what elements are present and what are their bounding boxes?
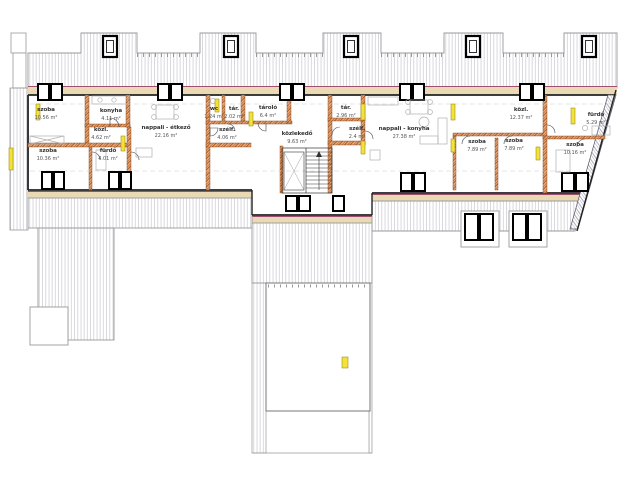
skylight-window-icon xyxy=(344,36,358,57)
floor-plan-canvas: szoba10.56 m²konyha4.11 m²közl.4.62 m²sz… xyxy=(0,0,640,480)
stairs xyxy=(282,148,332,193)
window-icon xyxy=(286,196,310,211)
window-icon xyxy=(400,84,424,100)
window-icon xyxy=(38,84,62,100)
left-roof xyxy=(10,33,28,230)
window-icon xyxy=(158,84,182,100)
lower-left-roof xyxy=(30,228,114,345)
skylight-window-icon xyxy=(582,36,596,57)
door-arcs xyxy=(92,118,585,160)
terrace xyxy=(266,283,370,411)
skylight-window-icon xyxy=(103,36,117,57)
skylight-window-icon xyxy=(466,36,480,57)
right-roof-edge xyxy=(570,90,616,231)
skylight-window-icon xyxy=(224,36,238,57)
slope-lines xyxy=(30,104,610,171)
dormer-window-icon xyxy=(461,211,499,247)
dormer-window-icon xyxy=(509,211,547,247)
window-icon xyxy=(280,84,304,100)
window-icon xyxy=(109,172,131,189)
window-icon xyxy=(520,84,544,100)
window-icon xyxy=(333,196,344,211)
window-icon xyxy=(562,173,588,191)
window-icon xyxy=(42,172,64,189)
floor-plan-drawing xyxy=(0,0,640,480)
window-icon xyxy=(401,173,425,191)
